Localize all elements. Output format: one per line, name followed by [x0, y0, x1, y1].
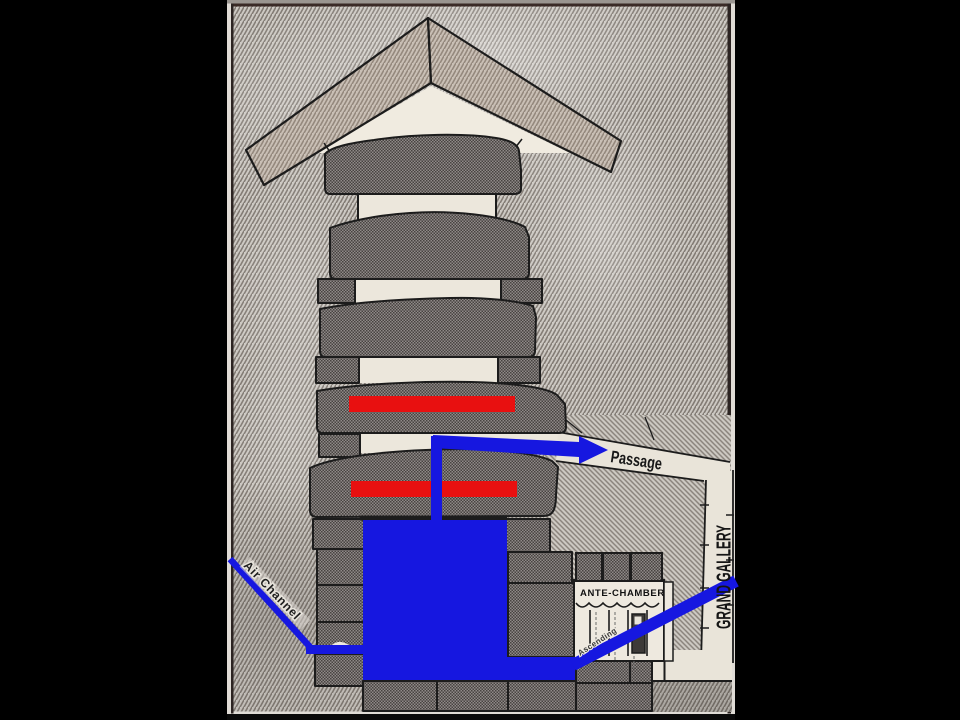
svg-text:ANTE-CHAMBER: ANTE-CHAMBER: [580, 588, 665, 599]
svg-text:GRAND GALLERY: GRAND GALLERY: [714, 525, 736, 629]
